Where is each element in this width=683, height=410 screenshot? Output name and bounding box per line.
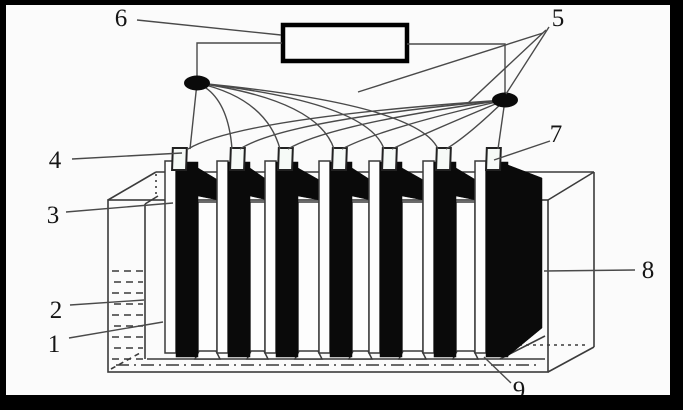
label-5: 5: [552, 5, 565, 32]
label-3: 3: [47, 202, 60, 229]
leader-4: [72, 153, 182, 159]
electrode-plate-3: [276, 162, 298, 357]
electrode-frame: [369, 161, 380, 353]
separator-plate: [402, 202, 423, 352]
label-7: 7: [550, 121, 563, 148]
left-junction-dot: [184, 76, 210, 91]
leader-6: [137, 20, 281, 35]
leader-8: [544, 270, 635, 271]
electrode-plate-7: [486, 162, 508, 357]
separator-plate: [250, 202, 265, 352]
wire-right-to-tab2: [240, 100, 505, 149]
wire-right-bus: [407, 44, 505, 149]
electrode-frame: [319, 161, 330, 353]
wire-right-to-tab4: [342, 100, 505, 149]
tank-top-left-edge: [108, 172, 156, 200]
tank-hidden-bottom-left-corner: [111, 353, 140, 369]
tab-5: [382, 148, 397, 170]
border-bottom: [0, 395, 683, 410]
separator-foot: [295, 351, 322, 359]
separator-foot: [399, 351, 426, 359]
end-plate: [508, 165, 542, 356]
electrode-plate-4: [330, 162, 352, 357]
label-8: 8: [642, 257, 655, 284]
electrolytic-cell-diagram: 1 2 3 4 5 6 7 8 9: [0, 0, 683, 410]
electrode-frame: [265, 161, 276, 353]
electrode-frame: [423, 161, 434, 353]
tank-top-right-edge: [548, 172, 594, 200]
leader-1: [69, 322, 163, 338]
separator-plate: [198, 202, 217, 352]
tab-2: [230, 148, 245, 170]
tab-1: [172, 148, 187, 170]
electrode-plate-2: [228, 162, 250, 357]
border-top: [0, 0, 683, 5]
separator-plate: [456, 202, 475, 352]
label-4: 4: [49, 147, 62, 174]
power-source-box: [283, 25, 407, 61]
label-2: 2: [50, 297, 63, 324]
electrode-frame: [217, 161, 228, 353]
tab-3: [278, 148, 293, 170]
diagram-canvas: 1 2 3 4 5 6 7 8 9: [0, 0, 683, 410]
electrode-plate-1: [176, 162, 198, 357]
label-6: 6: [115, 5, 128, 32]
separator-plate: [352, 202, 369, 352]
electrode-plate-5: [380, 162, 402, 357]
electrode-frame: [165, 161, 176, 353]
electrode-frame: [475, 161, 486, 353]
leader-9: [484, 357, 511, 383]
electrolyte-level-marks: [112, 271, 143, 359]
leader-7: [494, 141, 550, 160]
right-junction-dot: [492, 93, 518, 108]
tank-bottom-right-edge: [548, 347, 594, 372]
leader-3: [66, 203, 173, 212]
separator-plate: [298, 202, 319, 352]
electrode-plate-6: [434, 162, 456, 357]
border-left: [0, 0, 6, 410]
tab-4: [332, 148, 347, 170]
border-right: [670, 0, 683, 410]
tab-6: [436, 148, 451, 170]
label-1: 1: [48, 331, 61, 358]
